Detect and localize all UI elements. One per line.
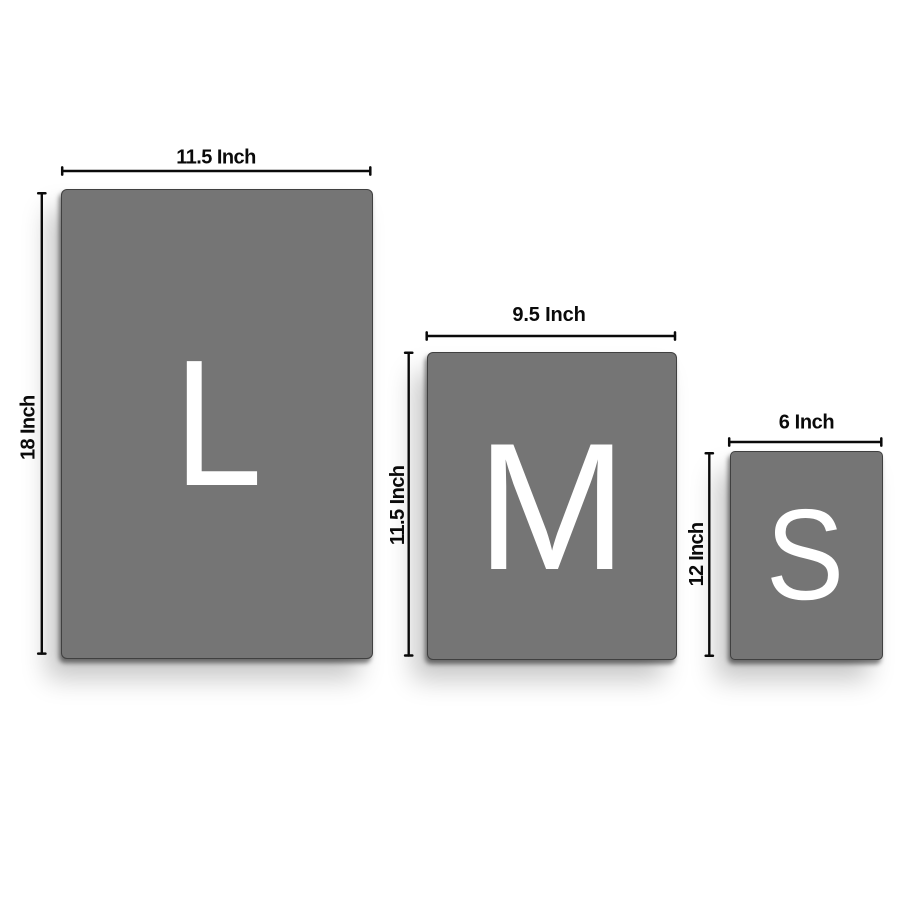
svg-text:11.5 Inch: 11.5 Inch	[176, 146, 256, 168]
svg-text:9.5 Inch: 9.5 Inch	[512, 304, 585, 326]
svg-text:11.5 Inch: 11.5 Inch	[387, 466, 409, 546]
svg-text:12 Inch: 12 Inch	[686, 523, 708, 587]
svg-text:18 Inch: 18 Inch	[18, 395, 40, 460]
svg-text:6 Inch: 6 Inch	[779, 412, 834, 434]
